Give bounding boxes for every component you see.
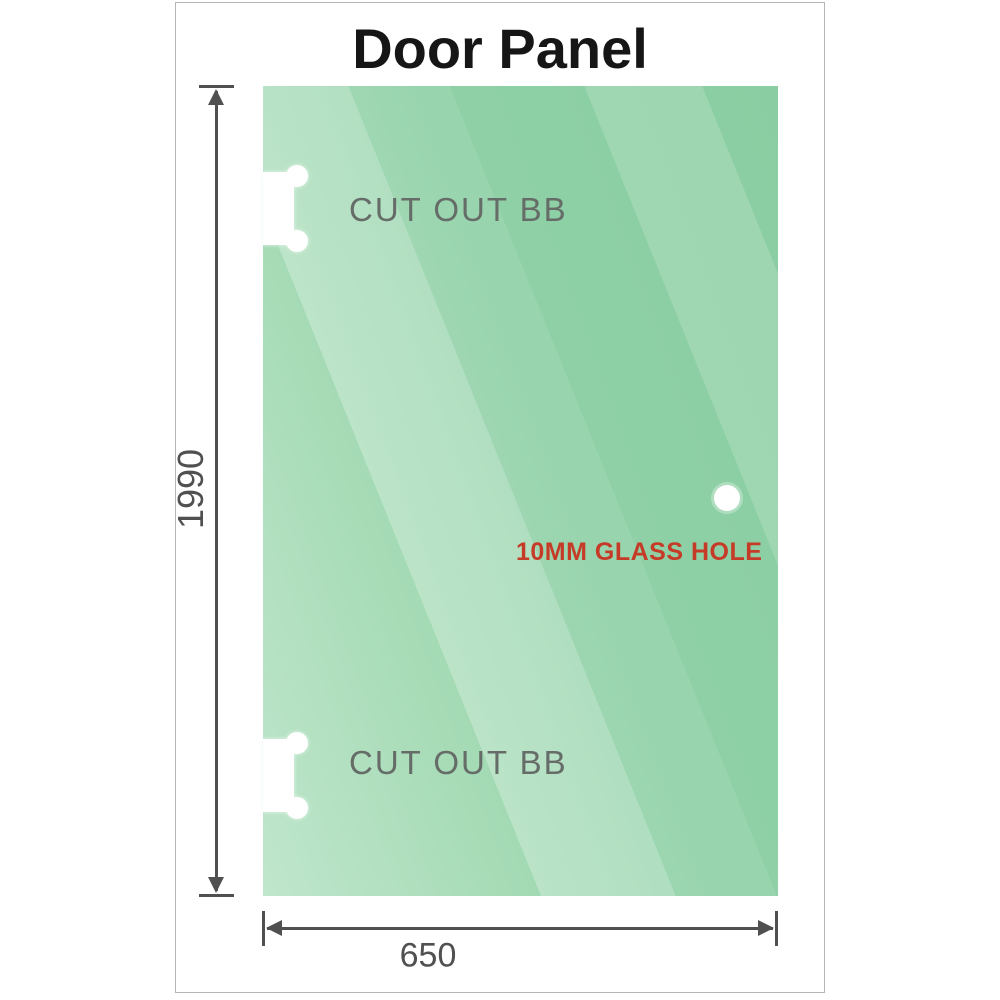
width-dimension — [262, 911, 778, 946]
dimension-line-vertical — [215, 91, 218, 891]
page-title: Door Panel — [175, 18, 825, 80]
glass-hole — [714, 485, 740, 511]
hinge-cutout-top — [263, 165, 308, 252]
width-dimension-value: 650 — [400, 937, 457, 976]
dimension-tick-bottom — [199, 894, 234, 897]
dimension-tick-top — [199, 85, 234, 88]
dimension-tick-left — [262, 911, 265, 946]
cutout-label-top: CUT OUT BB — [349, 193, 568, 226]
arrow-up-icon — [208, 89, 224, 105]
arrow-right-icon — [758, 920, 774, 936]
arrow-down-icon — [208, 877, 224, 893]
glass-hole-label: 10MM GLASS HOLE — [516, 538, 762, 567]
cutout-lobe-icon — [286, 797, 308, 819]
dimension-line-horizontal — [267, 927, 773, 930]
dimension-tick-right — [775, 911, 778, 946]
arrow-left-icon — [266, 920, 282, 936]
cutout-lobe-icon — [286, 165, 308, 187]
glass-panel: CUT OUT BB CUT OUT BB 10MM GLASS HOLE — [263, 86, 778, 896]
height-dimension-value: 1990 — [170, 449, 212, 529]
hinge-cutout-bottom — [263, 732, 308, 819]
cutout-label-bottom: CUT OUT BB — [349, 746, 568, 779]
cutout-lobe-icon — [286, 732, 308, 754]
cutout-lobe-icon — [286, 230, 308, 252]
diagram-canvas: Door Panel CUT OUT BB CUT OUT BB 10MM GL… — [0, 0, 1000, 1000]
